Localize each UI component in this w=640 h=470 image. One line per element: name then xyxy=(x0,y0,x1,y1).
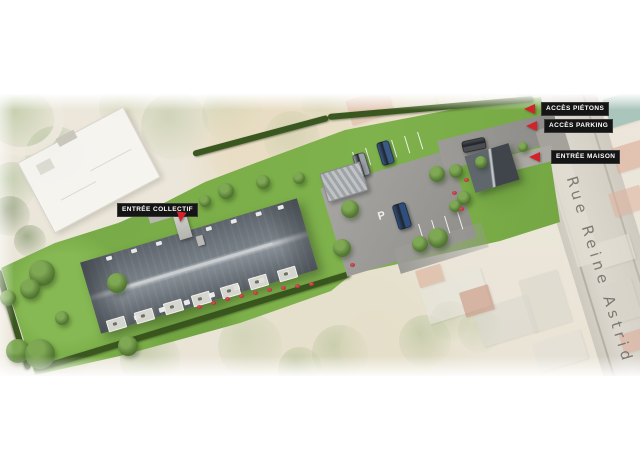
flower-bush xyxy=(459,207,464,211)
flower-bush xyxy=(239,294,244,298)
tree xyxy=(412,236,428,252)
roof-chimney xyxy=(196,235,206,247)
entree-maison-arrow-icon xyxy=(529,152,540,162)
patio-furniture xyxy=(227,289,232,293)
patio-furniture xyxy=(284,272,289,276)
tree xyxy=(118,336,138,356)
tree xyxy=(0,290,16,306)
label-acces-pietons: ACCÈS PIÉTONS xyxy=(541,102,609,116)
flower-bush xyxy=(253,291,258,295)
acces-pietons-arrow-icon xyxy=(524,104,535,114)
roof-dormer xyxy=(130,248,137,254)
tree xyxy=(449,164,463,178)
tree xyxy=(333,239,351,257)
tree xyxy=(55,311,69,325)
patio-furniture xyxy=(170,305,175,309)
aerial-photo: P Rue Reine Astrid xyxy=(0,94,640,376)
tree xyxy=(429,166,445,182)
tree xyxy=(256,175,270,189)
flower-bush xyxy=(295,284,300,288)
tree xyxy=(199,195,211,207)
flower-bush xyxy=(267,288,272,292)
flower-bush xyxy=(225,297,230,301)
patio-furniture xyxy=(198,297,203,301)
roof-detail xyxy=(61,181,97,201)
flower-bush xyxy=(309,282,314,286)
label-acces-parking: ACCÈS PARKING xyxy=(544,119,613,133)
tree xyxy=(218,183,234,199)
tree xyxy=(293,172,305,184)
flower-bush xyxy=(281,286,286,290)
patio-furniture xyxy=(255,280,260,284)
roof-dormer xyxy=(205,225,212,231)
roof-dormer xyxy=(230,218,237,224)
flower-bush xyxy=(197,305,202,309)
patio-furniture xyxy=(113,322,118,326)
faded-building xyxy=(532,329,589,372)
tree xyxy=(25,339,55,369)
flower-bush xyxy=(350,263,355,267)
roof-detail xyxy=(36,158,55,175)
flower-bush xyxy=(464,178,469,182)
tree xyxy=(475,156,487,168)
roof-detail xyxy=(90,149,131,171)
faded-tree xyxy=(340,309,420,376)
patio-furniture xyxy=(141,314,146,318)
tree xyxy=(107,273,127,293)
tree xyxy=(341,200,359,218)
flower-bush xyxy=(452,191,457,195)
tree xyxy=(428,228,448,248)
roof-dormer xyxy=(155,240,162,246)
entree-collectif-arrow-icon xyxy=(175,211,186,222)
label-entree-maison: ENTRÉE MAISON xyxy=(551,150,620,164)
tree xyxy=(518,142,528,152)
flower-bush xyxy=(211,301,216,305)
roof-dormer xyxy=(183,299,190,305)
acces-parking-arrow-icon xyxy=(526,121,537,131)
tree xyxy=(20,279,40,299)
